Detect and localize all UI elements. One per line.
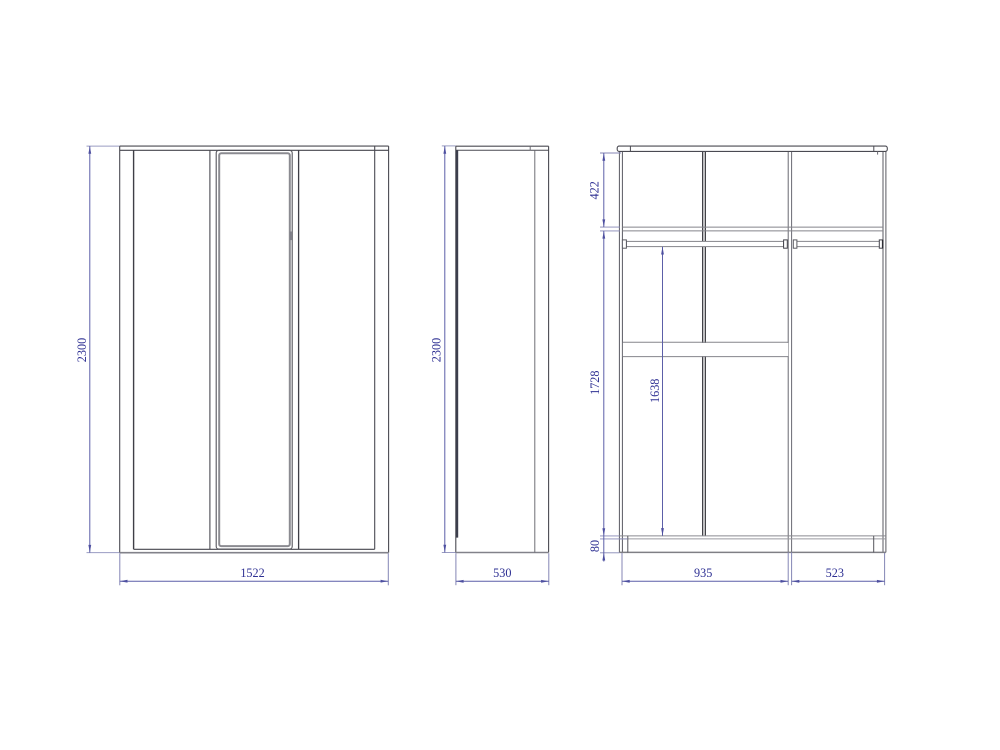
svg-text:2300: 2300 [75, 338, 89, 362]
svg-text:1638: 1638 [648, 379, 662, 403]
svg-text:530: 530 [493, 566, 511, 580]
svg-text:422: 422 [587, 181, 601, 199]
svg-text:1728: 1728 [588, 371, 602, 395]
svg-text:935: 935 [694, 566, 712, 580]
svg-text:1522: 1522 [240, 566, 264, 580]
svg-text:2300: 2300 [429, 338, 443, 362]
svg-text:80: 80 [588, 540, 602, 552]
svg-text:523: 523 [826, 566, 844, 580]
